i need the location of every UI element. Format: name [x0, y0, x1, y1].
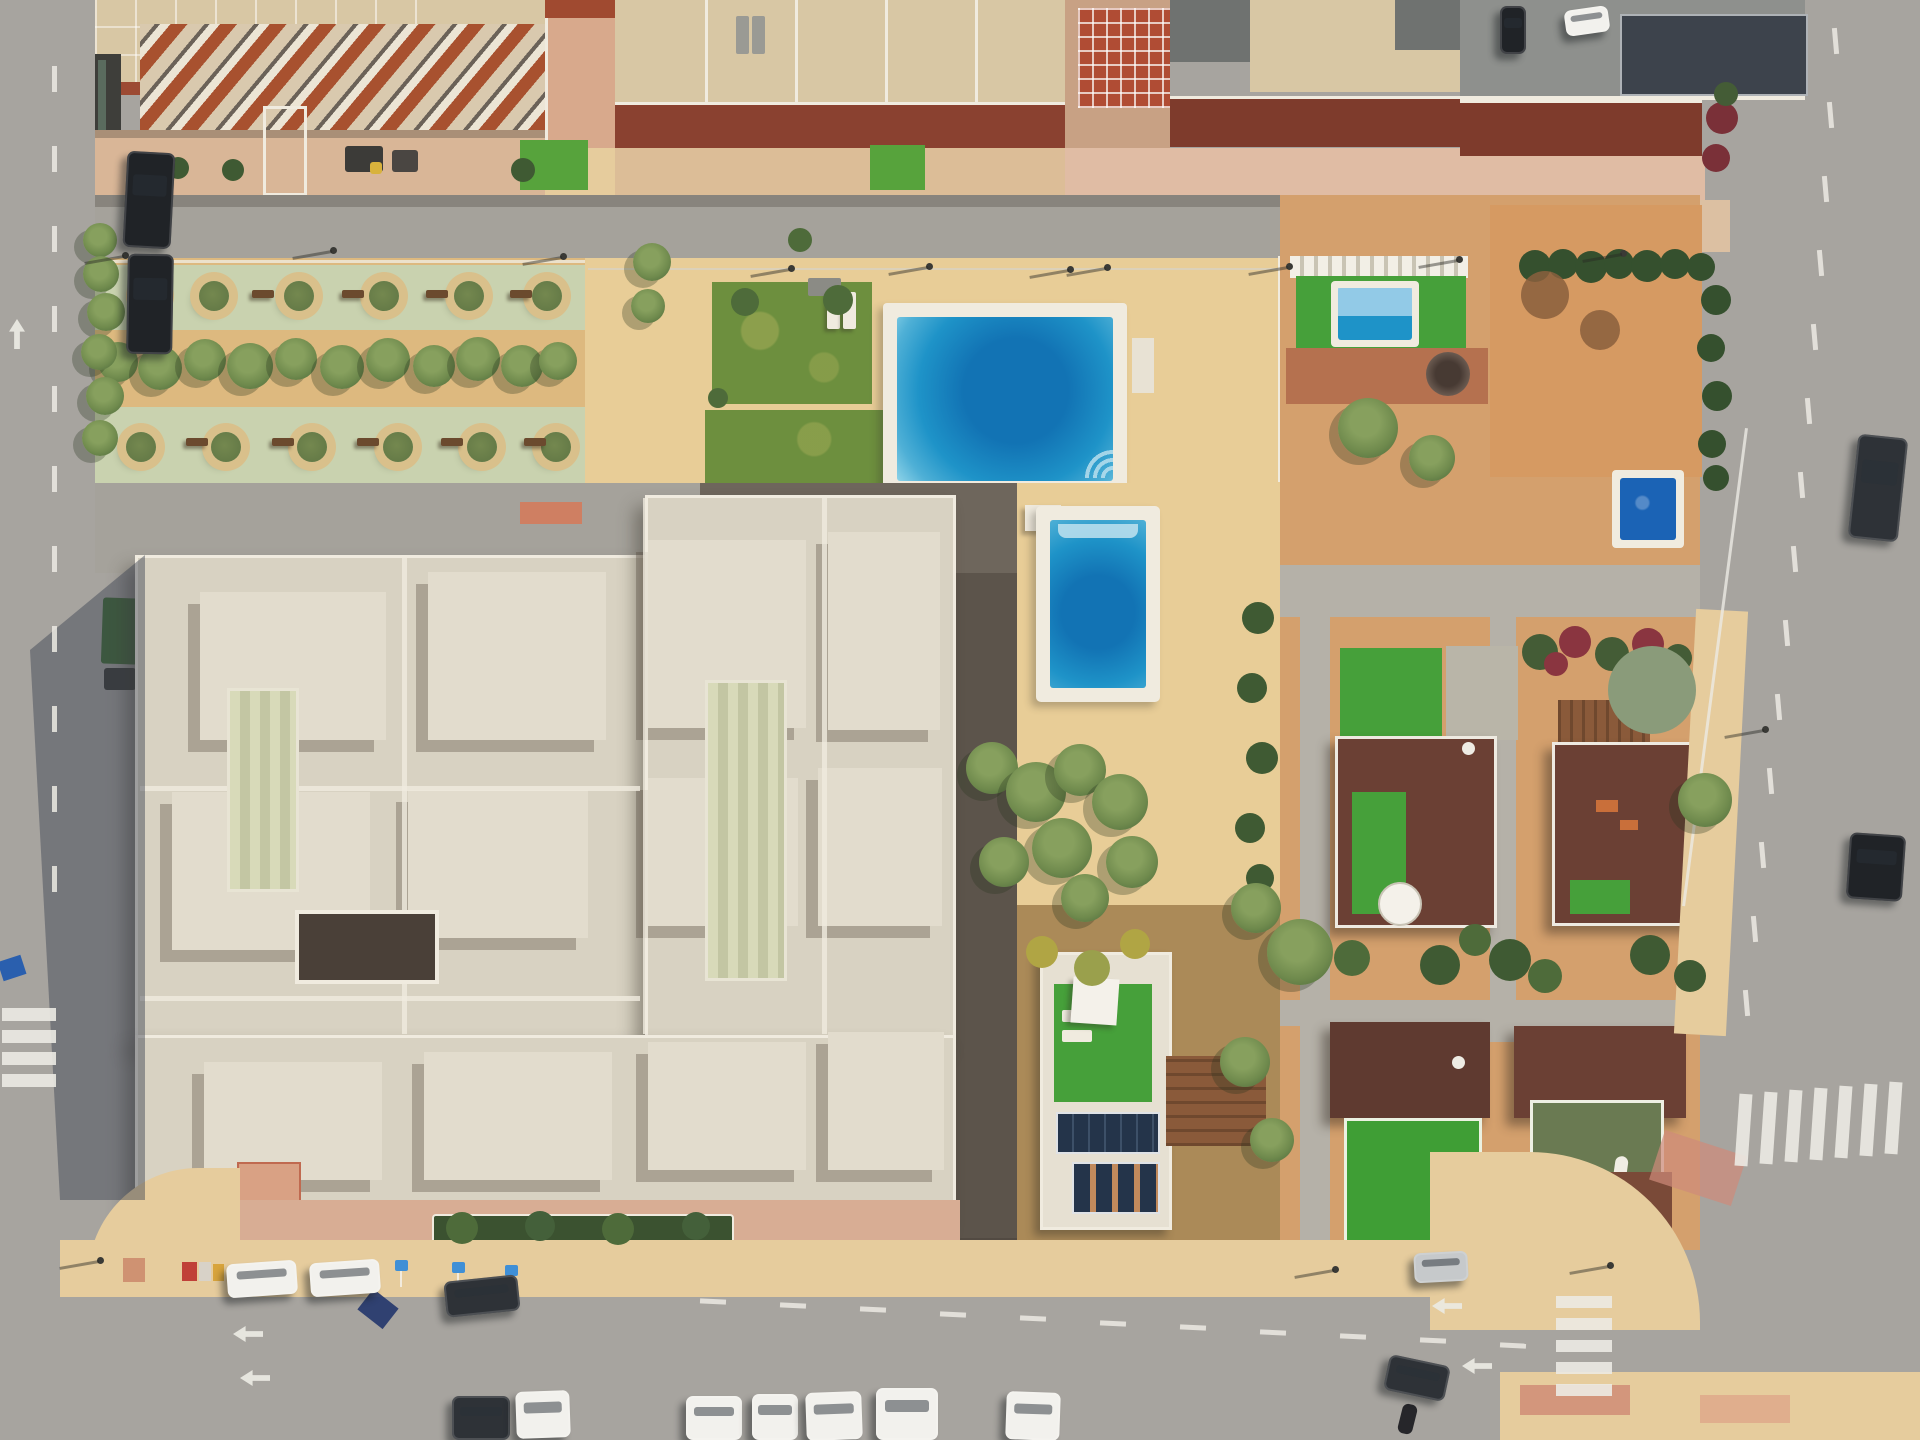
vending-box-white: [199, 1262, 211, 1281]
parked-car: [515, 1390, 571, 1439]
skylight-strip-short: [227, 688, 299, 892]
give-way-stripe: [1885, 1082, 1903, 1155]
parked-car: [1005, 1391, 1061, 1440]
lane-dash: [1260, 1329, 1286, 1335]
lane-dash: [860, 1306, 886, 1312]
lane-dash: [1500, 1342, 1526, 1348]
turf-garden: [1340, 648, 1442, 740]
vending-box-yellow: [213, 1264, 224, 1281]
white-gate-frame: [263, 106, 307, 196]
parapet-line-v: [822, 498, 827, 1034]
lane-dash: [1811, 324, 1818, 350]
give-way-stripe: [1860, 1084, 1878, 1157]
lane-dash: [1791, 546, 1798, 572]
lane-dash: [1832, 28, 1839, 54]
lane-dash: [52, 66, 57, 92]
lane-dash: [52, 226, 57, 252]
lane-dash: [780, 1302, 806, 1308]
glass-canopy-dark: [1620, 14, 1808, 96]
pool-cover: [1338, 288, 1412, 316]
vending-box-red: [182, 1262, 197, 1281]
parked-car: [752, 1394, 798, 1440]
garden-green-band-upper: [95, 265, 589, 330]
garden-green-band-lower: [95, 407, 589, 483]
villa-roof-deck: [1330, 1022, 1490, 1118]
shrub: [1702, 144, 1730, 172]
garden-fence-top: [95, 260, 589, 263]
townhouse-canopy-band: [615, 102, 1065, 151]
wood-pergola-deck: [1166, 1056, 1266, 1146]
lane-dash: [1817, 250, 1824, 276]
lane-dash: [1020, 1315, 1046, 1321]
townhouse-divider: [705, 0, 708, 102]
parapet-line-h: [140, 996, 640, 1001]
give-way-stripe: [1810, 1088, 1828, 1161]
lane-dash: [52, 386, 57, 412]
lane-dash: [52, 466, 57, 492]
road-arrow: [240, 1370, 270, 1386]
townhouse-roofs: [615, 0, 1065, 102]
solar-panel-array: [1056, 1112, 1160, 1154]
satellite-dish: [1452, 1056, 1465, 1069]
apartment-complex-ne: [645, 495, 956, 1043]
crosswalk-stripe: [2, 1074, 56, 1087]
yellow-chair: [370, 162, 382, 174]
skylight-strip-long: [705, 680, 787, 981]
pool-fence-line: [588, 268, 1280, 270]
villa-lane-vertical2: [1300, 617, 1330, 1240]
parapet-line-v: [643, 498, 648, 1034]
satellite-dish: [1462, 742, 1475, 755]
lane-dash: [1798, 472, 1805, 498]
parked-car: [876, 1388, 938, 1440]
sun-lounger: [843, 292, 856, 329]
crosswalk-stripe: [2, 1030, 56, 1043]
lane-dash: [1767, 768, 1774, 794]
red-tile-patio: [1065, 148, 1170, 196]
shrub: [1702, 381, 1732, 411]
worn-red-patch: [123, 1258, 145, 1282]
parked-car: [1848, 434, 1909, 543]
asphalt-path-vertical: [950, 573, 1017, 1250]
swimming-pool-small: [1050, 520, 1146, 688]
turf-patch-entrance: [520, 140, 588, 190]
gravel-patch: [1446, 646, 1518, 740]
sun-lounger: [752, 16, 765, 54]
lane-dash: [1340, 1333, 1366, 1339]
lane-dash: [1751, 916, 1758, 942]
lane-dash: [940, 1311, 966, 1317]
lane-dash: [52, 546, 57, 572]
white-steps-structure: [1132, 338, 1154, 393]
crosswalk-stripe: [2, 1008, 56, 1021]
lane-dash: [1100, 1320, 1126, 1326]
parked-car: [805, 1391, 863, 1440]
townhouse-patios: [615, 148, 1065, 196]
lane-dash: [1180, 1324, 1206, 1330]
give-way-stripe: [1835, 1086, 1853, 1159]
patio-furniture-dark2: [392, 150, 418, 172]
gray-block-canopies: [1460, 100, 1702, 159]
orange-awning: [1620, 820, 1638, 830]
lane-dash: [1827, 102, 1834, 128]
salmon-tower: [545, 0, 621, 150]
lane-dash: [1783, 620, 1790, 646]
road-arrow: [233, 1326, 263, 1342]
lane-dash: [52, 306, 57, 332]
townhouse2-roof-dark: [1170, 0, 1250, 62]
lane-dash: [1805, 398, 1812, 424]
patio-shadow: [95, 130, 545, 138]
pink-paving-patch: [1520, 1385, 1630, 1415]
crosswalk-stripe: [1556, 1340, 1612, 1352]
give-way-stripe: [1785, 1090, 1803, 1163]
townhouse-divider: [975, 0, 978, 102]
lawn-lower: [705, 410, 887, 483]
salmon-tower-roof: [545, 0, 615, 18]
small-pool-steps: [1058, 524, 1138, 538]
balcony-canopies-striped: [140, 24, 545, 130]
road-arrow: [1462, 1358, 1492, 1374]
parapet-line-h: [140, 786, 640, 791]
sidewalk-bottom: [60, 1240, 1500, 1297]
apartment-patio: [95, 130, 545, 196]
lane-dash: [52, 146, 57, 172]
townhouse-divider: [885, 0, 888, 102]
lane-dash: [1420, 1337, 1446, 1343]
crosswalk-stripe: [2, 1052, 56, 1065]
street-name-sign: [0, 955, 27, 981]
townhouse2-patios: [1170, 148, 1460, 195]
lane-dash: [1743, 990, 1750, 1016]
lane-dash: [1822, 176, 1829, 202]
pergola-slat-roof: [1290, 256, 1468, 278]
villa-lane-horizontal: [1280, 565, 1700, 617]
street-lamp: [1762, 726, 1769, 733]
parked-car: [1846, 832, 1906, 902]
driveway-building-shadow: [95, 195, 1460, 207]
lane-dash: [1759, 842, 1766, 868]
hot-tub: [1426, 352, 1470, 396]
townhouse-divider: [795, 0, 798, 102]
solar-panel-row: [1072, 1162, 1160, 1214]
orange-awning: [1596, 800, 1618, 812]
shrub: [1698, 430, 1726, 458]
road-arrow: [9, 319, 25, 349]
pool-corner-steps: [1063, 432, 1113, 478]
shrub: [1706, 102, 1738, 134]
pink-paving-patch: [1700, 1395, 1790, 1423]
white-umbrella-round: [1378, 882, 1422, 926]
patio-grass: [870, 145, 925, 190]
terrace-turf-patch: [1570, 880, 1630, 914]
salmon-stair-roof: [520, 502, 582, 524]
orange-terrace: [1490, 205, 1702, 477]
parked-car: [452, 1396, 510, 1440]
shrub: [1703, 465, 1729, 491]
townhouse2-canopies: [1170, 96, 1460, 147]
red-tile-terrace: [1078, 8, 1170, 108]
white-umbrella: [1070, 976, 1119, 1025]
swimming-pool-navy: [1620, 478, 1676, 540]
parked-car: [1383, 1354, 1451, 1402]
parked-car: [686, 1396, 742, 1440]
shrub: [1701, 285, 1731, 315]
townhouse2-roof-dark2: [1395, 0, 1460, 50]
parked-scooter: [1397, 1403, 1419, 1436]
aerial-photo-canvas: [0, 0, 1920, 1440]
lane-dash: [1775, 694, 1782, 720]
give-way-stripe: [1760, 1092, 1778, 1165]
terrace-lounger: [1062, 1030, 1092, 1042]
sun-lounger: [827, 292, 840, 329]
gray-block-patio: [1460, 156, 1705, 200]
sun-lounger: [736, 16, 749, 54]
lane-dash: [700, 1298, 726, 1304]
atrium-glass-roof: [295, 910, 439, 984]
